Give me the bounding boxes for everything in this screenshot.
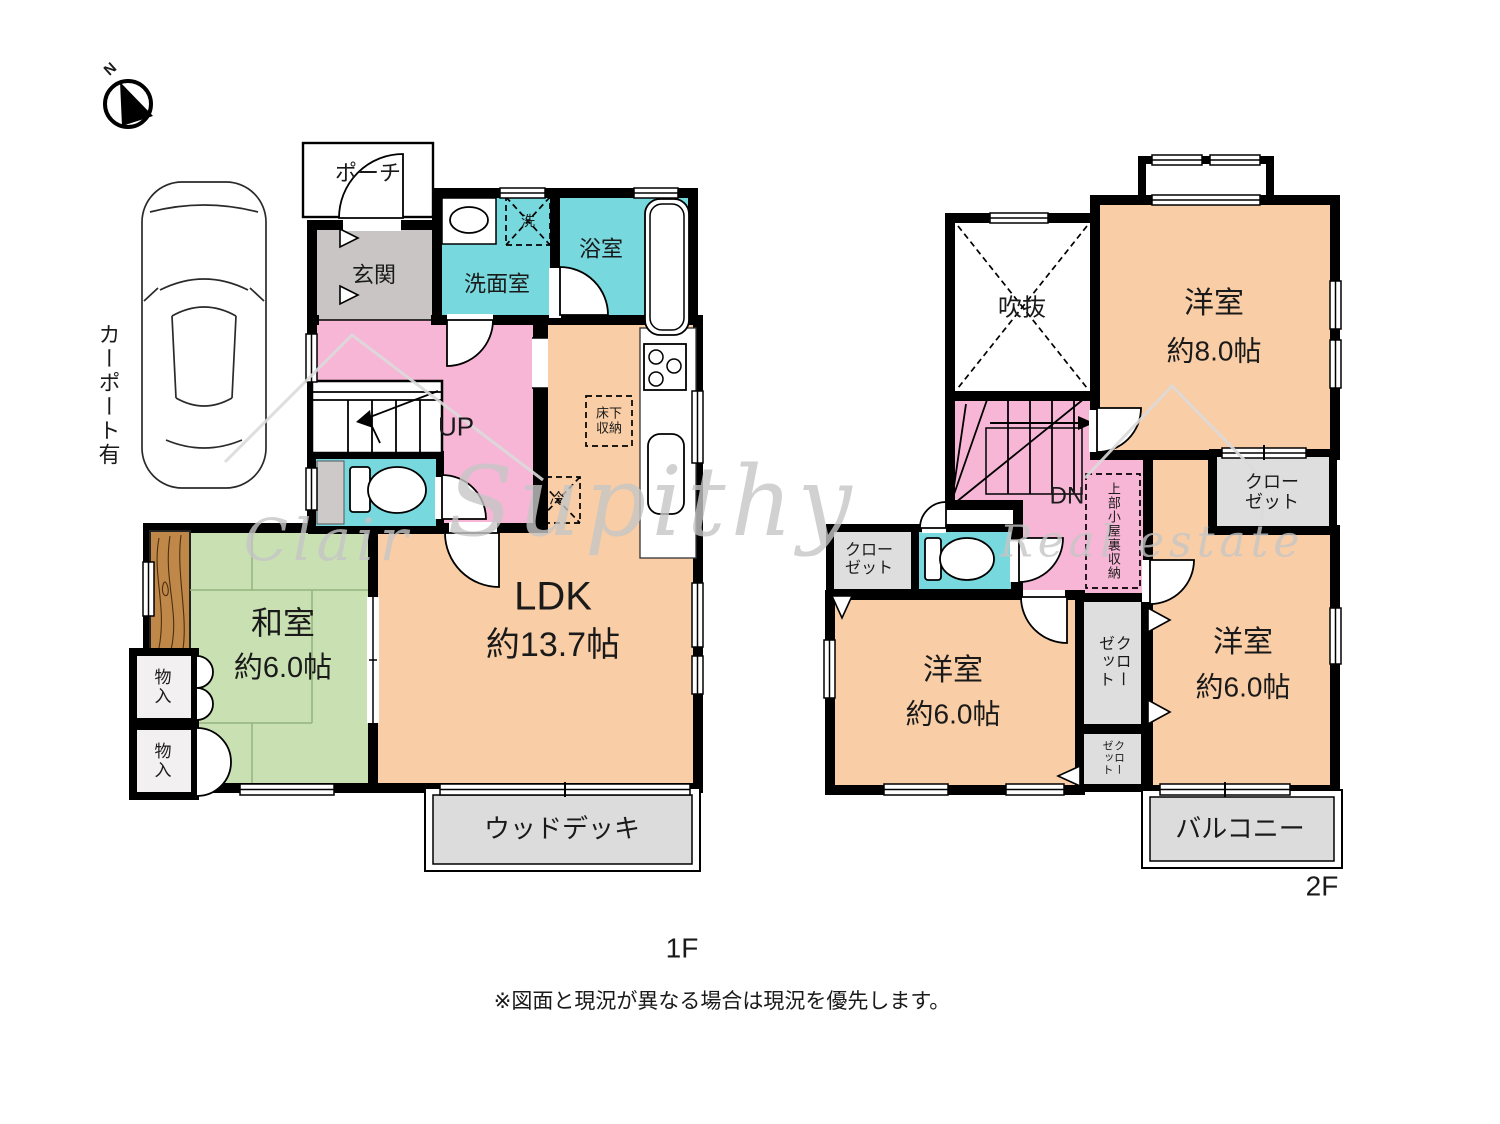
washroom-sink	[442, 198, 496, 244]
label-underfloor-storage: 床下 収納	[596, 406, 622, 435]
label-washroom: 洗面室	[464, 273, 530, 298]
label-void: 吹抜	[998, 296, 1046, 323]
label-fridge: 冷	[549, 492, 564, 509]
label-west6-left-size: 約6.0帖	[906, 698, 1001, 729]
stairs-1f	[312, 381, 442, 453]
label-west8-size: 約8.0帖	[1167, 335, 1262, 366]
label-stairs-dn: DN	[1050, 484, 1085, 511]
label-ldk: LDK	[514, 575, 592, 620]
label-entrance: 玄関	[352, 264, 396, 289]
label-bathroom: 浴室	[579, 238, 623, 263]
floorplan-image: N カーポート有 ポーチ 玄関 洗面室 浴室 洗 UP 床下 収納 冷 LDK …	[0, 0, 1500, 1124]
label-attic-storage: 上部小屋裏収納	[1106, 477, 1120, 585]
label-stairs-up: UP	[438, 412, 474, 441]
carport-label: カーポート有	[96, 323, 119, 467]
watermark-word3: Real estate	[1000, 517, 1305, 568]
bathtub	[645, 199, 689, 335]
label-washer: 洗	[521, 214, 535, 230]
label-closet-mid-lower: クローゼット	[1100, 738, 1123, 778]
label-japanese-room-size: 約6.0帖	[234, 652, 332, 684]
label-west6-right-size: 約6.0帖	[1196, 671, 1291, 702]
car-icon	[142, 182, 266, 488]
label-porch: ポーチ	[335, 162, 401, 187]
label-storage-2: 物 入	[155, 742, 172, 780]
label-wood-deck: ウッドデッキ	[484, 814, 640, 843]
label-floor2: 2F	[1306, 870, 1339, 901]
watermark-word2: Supithy	[447, 446, 856, 558]
label-west8: 洋室	[1184, 287, 1244, 321]
north-compass-icon	[105, 81, 153, 127]
watermark-word1: Clair	[244, 506, 413, 574]
label-closet-left: クロー ゼット	[845, 542, 893, 578]
label-west6-right: 洋室	[1213, 626, 1273, 660]
disclaimer-note: ※図面と現況が異なる場合は現況を優先します。	[494, 990, 951, 1014]
label-closet-top-right: クロー ゼット	[1245, 472, 1299, 512]
tokonoma-wood	[150, 531, 190, 653]
label-west6-left: 洋室	[923, 654, 983, 688]
label-japanese-room: 和室	[251, 606, 315, 642]
label-ldk-size: 約13.7帖	[486, 626, 620, 664]
label-floor1: 1F	[666, 932, 699, 963]
label-storage-1: 物 入	[155, 668, 172, 706]
label-balcony: バルコニー	[1175, 814, 1304, 843]
label-closet-mid-upper: クローゼット	[1095, 633, 1129, 691]
